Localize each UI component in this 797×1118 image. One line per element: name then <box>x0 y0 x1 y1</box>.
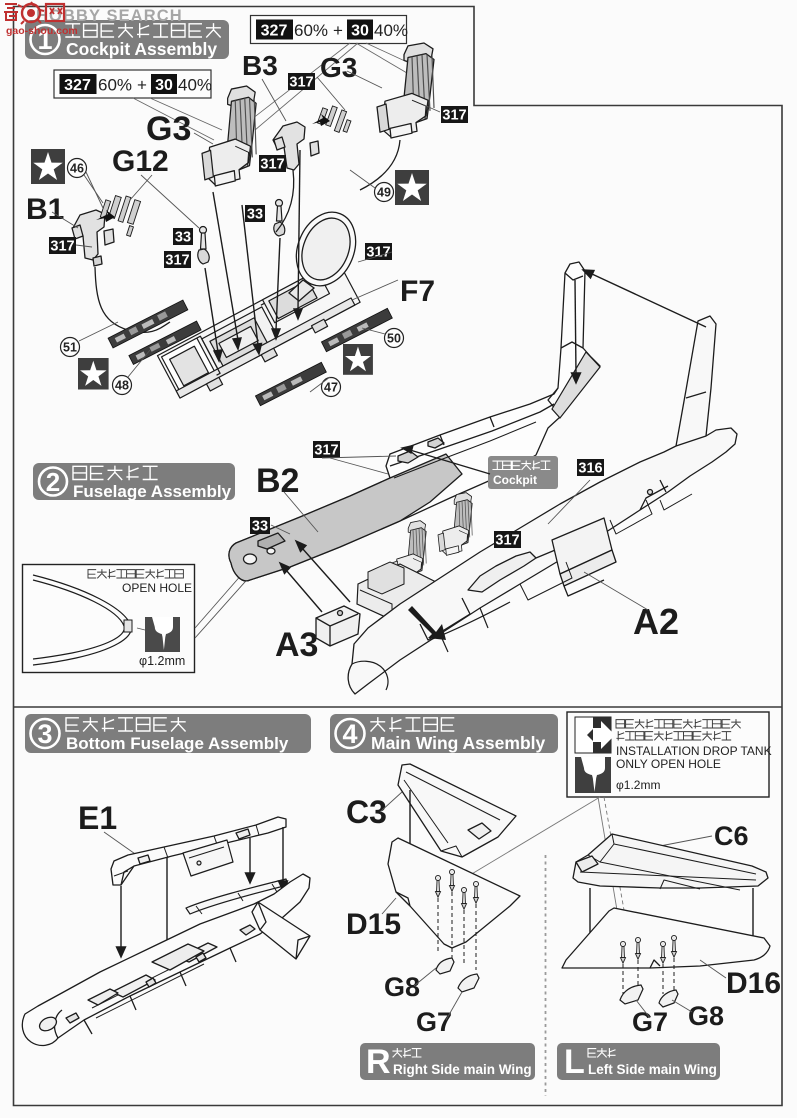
svg-text:gao-shou.com: gao-shou.com <box>6 25 78 37</box>
svg-text:ONLY OPEN HOLE: ONLY OPEN HOLE <box>616 757 721 771</box>
svg-text:Right Side main Wing: Right Side main Wing <box>393 1062 532 1077</box>
svg-text:+: + <box>333 21 343 40</box>
svg-text:47: 47 <box>324 381 338 395</box>
svg-text:C6: C6 <box>714 821 749 851</box>
svg-text:317: 317 <box>495 533 519 549</box>
svg-text:317: 317 <box>50 239 74 255</box>
svg-text:40%: 40% <box>178 76 212 95</box>
svg-text:A3: A3 <box>275 626 318 664</box>
svg-text:A2: A2 <box>633 601 679 642</box>
svg-text:E1: E1 <box>78 800 117 836</box>
svg-text:60%: 60% <box>98 76 132 95</box>
svg-text:30: 30 <box>351 23 369 40</box>
svg-text:Fuselage Assembly: Fuselage Assembly <box>73 482 232 501</box>
svg-text:33: 33 <box>175 230 191 246</box>
svg-text:317: 317 <box>314 443 338 459</box>
svg-text:INSTALLATION DROP TANK: INSTALLATION DROP TANK <box>616 744 772 758</box>
svg-text:Left Side main Wing: Left Side main Wing <box>588 1062 717 1077</box>
svg-text:R: R <box>366 1043 391 1081</box>
svg-text:Bottom Fuselage Assembly: Bottom Fuselage Assembly <box>66 734 289 753</box>
svg-text:OPEN HOLE: OPEN HOLE <box>122 581 192 595</box>
svg-text:40%: 40% <box>374 21 408 40</box>
svg-text:30: 30 <box>155 77 173 94</box>
svg-text:HOBBY SEARCH: HOBBY SEARCH <box>36 7 183 25</box>
svg-text:G7: G7 <box>632 1007 668 1037</box>
svg-text:B2: B2 <box>256 462 299 500</box>
svg-text:D16: D16 <box>726 967 781 1000</box>
svg-text:G7: G7 <box>416 1007 452 1037</box>
svg-text:3: 3 <box>37 719 52 749</box>
svg-text:L: L <box>564 1043 585 1081</box>
svg-text:G12: G12 <box>112 145 169 178</box>
svg-text:G3: G3 <box>146 110 191 148</box>
svg-text:B1: B1 <box>26 193 64 226</box>
svg-text:Cockpit Assembly: Cockpit Assembly <box>66 39 217 59</box>
svg-text:Main Wing Assembly: Main Wing Assembly <box>371 733 545 753</box>
svg-text:F7: F7 <box>400 275 435 308</box>
svg-text:317: 317 <box>165 253 189 269</box>
svg-text:50: 50 <box>387 332 401 346</box>
svg-text:G8: G8 <box>688 1001 724 1031</box>
svg-text:Cockpit: Cockpit <box>493 473 537 487</box>
svg-text:327: 327 <box>261 23 288 40</box>
svg-text:33: 33 <box>247 207 263 223</box>
svg-text:B3: B3 <box>242 50 278 81</box>
svg-text:51: 51 <box>63 341 77 355</box>
svg-text:+: + <box>137 76 147 95</box>
svg-text:327: 327 <box>64 77 91 94</box>
svg-text:60%: 60% <box>294 21 328 40</box>
svg-text:φ1.2mm: φ1.2mm <box>616 778 660 792</box>
svg-text:2: 2 <box>46 467 60 497</box>
svg-text:G8: G8 <box>384 972 420 1002</box>
svg-text:46: 46 <box>70 162 84 176</box>
svg-text:φ1.2mm: φ1.2mm <box>139 654 185 668</box>
svg-text:4: 4 <box>342 719 357 749</box>
svg-text:49: 49 <box>377 186 391 200</box>
svg-text:48: 48 <box>115 379 129 393</box>
svg-text:33: 33 <box>252 519 268 535</box>
svg-text:317: 317 <box>260 157 284 173</box>
svg-text:C3: C3 <box>346 794 387 830</box>
svg-text:316: 316 <box>578 461 602 477</box>
svg-text:317: 317 <box>289 75 313 91</box>
svg-text:317: 317 <box>442 108 466 124</box>
svg-text:G3: G3 <box>320 52 357 83</box>
svg-text:D15: D15 <box>346 908 401 941</box>
